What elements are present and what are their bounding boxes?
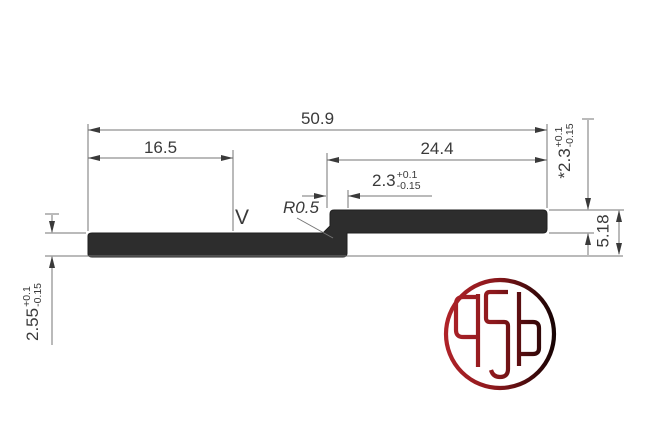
dim-step-height-label: 5.18	[595, 214, 612, 247]
dim-right-thickness-label: *2.3+0.1-0.15	[556, 123, 578, 178]
surface-mark-v: V	[235, 207, 249, 228]
dim-total-width-label: 50.9	[88, 110, 547, 127]
tolerance-stack: +0.1-0.15	[22, 283, 44, 307]
technical-drawing-canvas: 50.9 16.5 24.4 2.3+0.1-0.15 R0.5 V *2.3+…	[0, 0, 666, 438]
tolerance-stack: +0.1-0.15	[554, 123, 576, 147]
dim-overlap-label: 2.3+0.1-0.15	[372, 172, 421, 194]
drawing-geometry	[0, 0, 666, 438]
dim-right-segment-label: 24.4	[327, 140, 547, 157]
dim-radius-label: R0.5	[283, 199, 319, 216]
dim-left-segment-label: 16.5	[88, 139, 233, 156]
tolerance-stack: +0.1-0.15	[397, 170, 421, 192]
asa-logo	[446, 280, 554, 388]
profile-shape	[88, 210, 547, 257]
dim-left-thickness-label: 2.55+0.1-0.15	[24, 283, 46, 341]
